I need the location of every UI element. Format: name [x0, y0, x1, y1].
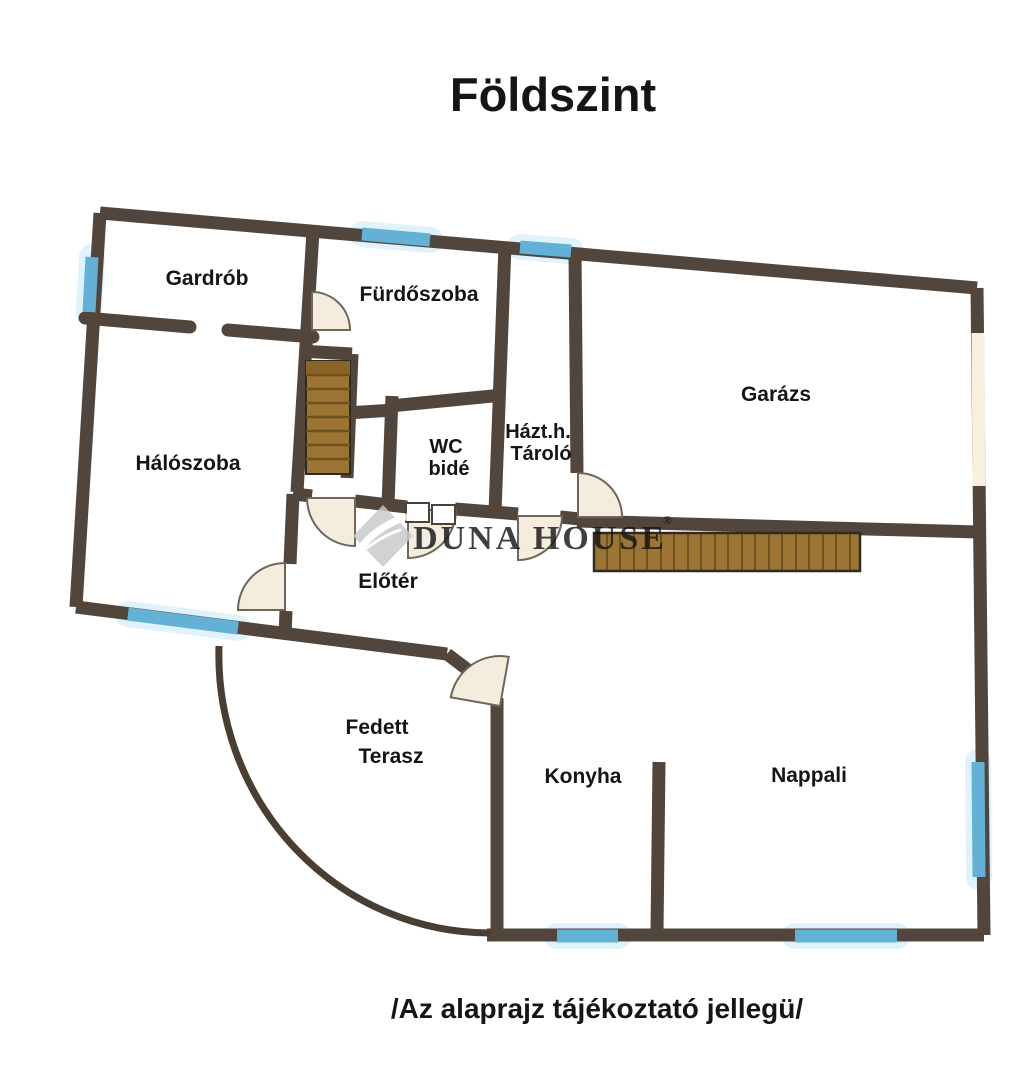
- walls: [76, 213, 984, 936]
- room-label-tarolo-line2: Tároló: [510, 443, 571, 465]
- wall-hall-north-b: [355, 501, 407, 507]
- window-left: [89, 257, 92, 312]
- wall-gardrob-south-right: [228, 330, 313, 337]
- wall-garage-west: [575, 252, 577, 473]
- window-glows: [89, 234, 979, 936]
- windows: [89, 234, 979, 936]
- room-label-terasz-line2: Terasz: [359, 745, 424, 768]
- terrace-curved-wall: [219, 646, 490, 933]
- wall-bedroom-east-upper: [290, 494, 293, 564]
- floor-plan-canvas: Földszint: [0, 0, 1024, 1071]
- wall-kitchen-living-divider: [657, 762, 659, 932]
- floor-plan-page: Földszint: [0, 0, 1024, 1071]
- wall-bath-east: [495, 245, 505, 512]
- door-hall-west: [307, 498, 355, 546]
- room-label-eloter: Előtér: [358, 570, 418, 593]
- wall-stairs-north: [300, 351, 352, 354]
- room-label-konyha: Konyha: [544, 765, 621, 788]
- door-bathroom: [312, 292, 350, 330]
- window-top-2: [520, 247, 571, 251]
- room-label-terasz-line1: Fedett: [346, 716, 409, 739]
- footer-disclaimer: /Az alaprajz tájékoztató jellegü/: [391, 993, 804, 1024]
- door-garage-storage: [578, 473, 622, 517]
- staircase: [306, 361, 350, 474]
- room-label-nappali: Nappali: [771, 764, 847, 787]
- room-label-furdoszoba: Fürdőszoba: [360, 283, 479, 306]
- garage-door: [978, 333, 979, 486]
- room-label-garazs: Garázs: [741, 383, 811, 406]
- room-label-gardrob: Gardrób: [166, 267, 249, 290]
- wall-hall-north-c: [455, 509, 518, 514]
- wall-wc-north: [390, 395, 503, 406]
- room-label-tarolo-line1: Házt.h.: [505, 421, 571, 443]
- wall-bedroom-east-lower: [285, 611, 286, 636]
- room-label-wc-line1: WC: [429, 436, 462, 458]
- window-right-living: [978, 762, 979, 877]
- door-bedroom: [238, 563, 285, 610]
- watermark-registered-mark: ®: [663, 513, 672, 527]
- page-title: Földszint: [450, 68, 657, 121]
- watermark-brand-text: DUNA HOUSE: [413, 520, 667, 557]
- room-label-wc-line2: bidé: [428, 458, 469, 480]
- stairs-top-tread: [306, 361, 350, 375]
- room-label-haloszoba: Hálószoba: [135, 452, 240, 475]
- window-top-1: [362, 234, 430, 240]
- wall-gardrob-south-left: [85, 318, 190, 327]
